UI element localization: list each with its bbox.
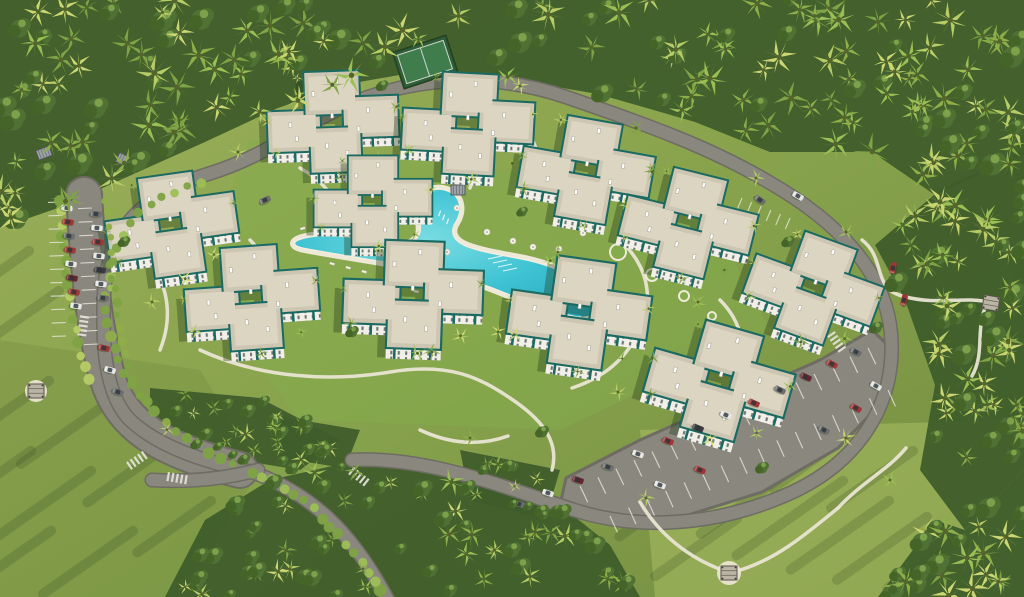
pergola (451, 185, 465, 195)
hedge-shrub (170, 189, 179, 198)
hedge-shrub (76, 352, 84, 360)
hedge-shrub (143, 397, 153, 407)
hedge-shrub (203, 447, 215, 459)
hedge-shrub (68, 315, 78, 325)
hedge-shrub (247, 468, 258, 479)
hedge-shrub (84, 374, 95, 385)
umbrella-pole (456, 207, 458, 209)
scene-canvas (0, 0, 1024, 597)
pavilion (28, 384, 44, 398)
umbrella-pole (532, 246, 534, 248)
hedge-shrub (310, 503, 319, 512)
hedge-shrub (80, 361, 91, 372)
umbrella-pole (486, 231, 488, 233)
hedge-shrub (126, 219, 135, 228)
umbrella-pole (512, 240, 514, 242)
hedge-shrub (229, 460, 237, 468)
hedge-shrub (196, 178, 206, 188)
hedge-shrub (349, 548, 358, 557)
hedge-shrub (112, 285, 119, 292)
hedge-shrub (317, 514, 328, 525)
pavilion (982, 295, 1000, 312)
hedge-shrub (257, 472, 267, 482)
hedge-shrub (114, 311, 121, 318)
hedge-shrub (116, 324, 124, 332)
hedge-shrub (114, 355, 122, 363)
hedge-shrub (119, 369, 128, 378)
hedge-shrub (106, 223, 113, 230)
hedge-shrub (72, 337, 83, 348)
hedge-shrub (117, 337, 127, 347)
hedge-shrub (107, 249, 114, 256)
hedge-shrub (100, 305, 109, 314)
hedge-shrub (332, 528, 343, 539)
planting-circle (679, 291, 689, 301)
hedge-shrub (370, 576, 380, 586)
aerial-rendering-apartment-complex (0, 0, 1024, 597)
umbrella-pole (446, 251, 448, 253)
hedge-shrub (113, 298, 123, 308)
hedge-shrub (215, 453, 227, 465)
hedge-shrub (183, 182, 191, 190)
hedge-shrub (148, 201, 156, 209)
hedge-shrub (148, 406, 159, 417)
hedge-shrub (126, 362, 133, 369)
hedge-shrub (107, 234, 114, 241)
hedge-shrub (101, 198, 108, 205)
hedge-shrub (122, 350, 129, 357)
hedge-shrub (104, 208, 113, 217)
hedge-shrub (280, 484, 290, 494)
hedge-shrub (102, 318, 113, 329)
hedge-shrub (133, 208, 143, 218)
hedge-shrub (288, 489, 298, 499)
hedge-shrub (171, 427, 180, 436)
hedge-shrub (73, 326, 81, 334)
hedge-shrub (136, 391, 144, 399)
planting-circle (708, 312, 716, 320)
hedge-shrub (182, 433, 193, 444)
hedge-shrub (105, 331, 116, 342)
hedge-shrub (341, 540, 350, 549)
hedge-shrub (128, 376, 137, 385)
hedge-shrub (106, 261, 114, 269)
umbrella-pole (582, 232, 584, 234)
hedge-shrub (107, 275, 115, 283)
hedge-shrub (299, 496, 307, 504)
pavilion (721, 566, 737, 580)
hedge-shrub (157, 193, 165, 201)
